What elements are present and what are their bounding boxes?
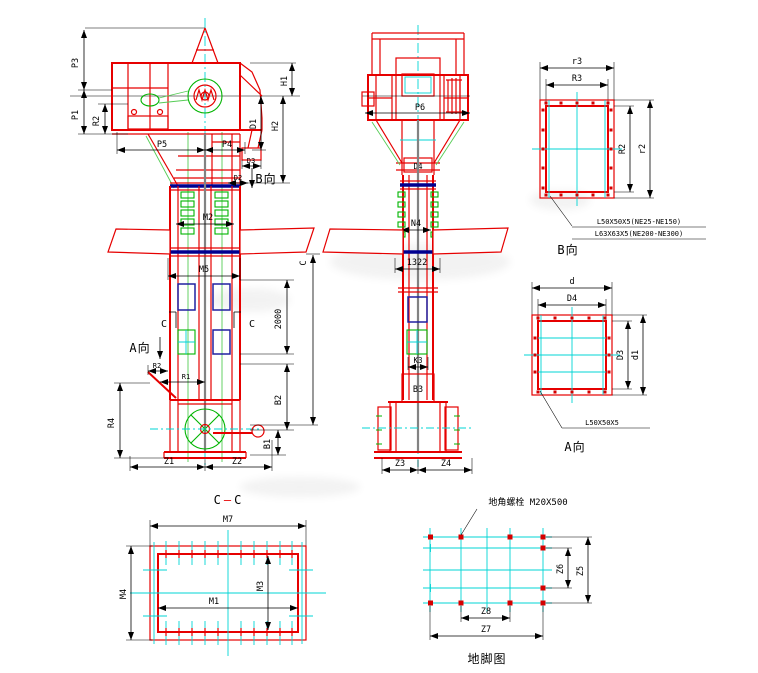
dim-d1-detail: d1 — [631, 350, 641, 360]
dim-r2-inner: R2 — [618, 144, 628, 154]
dim-d2: D2 — [234, 174, 242, 182]
dim-r2-outer: r2 — [638, 144, 648, 154]
dim-m3: M3 — [256, 581, 266, 591]
dim-z7: Z7 — [481, 625, 491, 635]
dim-z5: Z5 — [576, 566, 586, 576]
floor-slab-right — [433, 228, 508, 254]
dim-2000: 2000 — [274, 309, 284, 329]
dim-m5: M5 — [199, 265, 209, 275]
dim-z6: Z6 — [556, 564, 566, 574]
view-a-title: A向 — [564, 439, 585, 454]
dim-p4: P4 — [222, 140, 232, 150]
section-cut-c-left: C — [161, 319, 167, 330]
floor-slab-left — [323, 229, 403, 254]
cc-title-dash: — — [224, 493, 232, 507]
dim-z8: Z8 — [481, 607, 491, 617]
head-platform — [112, 63, 240, 130]
boot-section-front — [150, 400, 264, 458]
section-cut-c-right: C — [249, 319, 255, 330]
dim-z3: Z3 — [395, 459, 405, 469]
cad-drawing-sheet: P3 P1 R2 P5 P4 H1 D1 H2 D3 D2 B向 M2 — [0, 0, 758, 673]
section-cc-plan: C—C M7 M4 M3 M1 — [119, 493, 326, 656]
dim-b1: B1 — [263, 439, 273, 449]
foundation-plan: 地角螺栓 M20X500 Z6 Z5 Z8 Z7 地脚图 — [423, 496, 592, 666]
angle-steel-note-small: L50X50X5(NE25-NE150) — [597, 218, 681, 226]
angle-steel-note: L50X50X5 — [585, 419, 619, 427]
bucket-elevator-drawing: P3 P1 R2 P5 P4 H1 D1 H2 D3 D2 B向 M2 — [0, 0, 758, 673]
dim-d3: D3 — [247, 157, 255, 165]
drive-motor — [128, 91, 188, 129]
inspection-door — [178, 284, 195, 310]
dim-m1: M1 — [209, 597, 219, 607]
view-a-detail: d D4 D3 d1 L50X50X5 A向 — [524, 277, 650, 454]
foundation-title: 地脚图 — [467, 651, 506, 666]
dim-r1: R1 — [182, 373, 190, 381]
inspection-door — [213, 330, 230, 354]
floor-slab-left — [108, 229, 170, 254]
view-arrow-a: A向 — [129, 340, 150, 355]
dim-p3: P3 — [71, 58, 81, 68]
dim-1322: 1322 — [407, 258, 427, 268]
dim-z1: Z1 — [164, 457, 174, 467]
dim-r4: R4 — [107, 418, 117, 428]
view-b-detail: r3 R3 R2 r2 L50X50X5(NE25-NE150) L63X63X… — [532, 57, 706, 257]
anchor-bolt-note: 地角螺栓 M20X500 — [488, 496, 567, 508]
section-cc-title: C—C — [214, 493, 243, 507]
angle-steel-note-large: L63X63X5(NE200-NE300) — [595, 230, 684, 238]
dim-b3: B3 — [413, 385, 423, 395]
dim-r2-head: R2 — [92, 116, 102, 126]
dim-d3-detail: D3 — [616, 350, 626, 360]
dim-p6: P6 — [415, 103, 425, 113]
dim-n4: N4 — [411, 219, 421, 229]
front-elevation-view: P3 P1 R2 P5 P4 H1 D1 H2 D3 D2 B向 M2 — [70, 18, 320, 471]
dim-r2: R2 — [153, 362, 161, 370]
dim-r3-outer: r3 — [572, 57, 582, 67]
dim-c-length: C — [299, 260, 309, 265]
dim-m7: M7 — [223, 515, 233, 525]
dim-b2: B2 — [274, 395, 284, 405]
dim-z4: Z4 — [441, 459, 451, 469]
cc-title-c1: C — [214, 493, 222, 507]
dim-m2: M2 — [203, 213, 213, 223]
dim-h1: H1 — [280, 76, 290, 86]
dim-r3-inner: R3 — [572, 74, 582, 84]
dim-d1: D1 — [249, 119, 259, 129]
view-b-title: B向 — [557, 242, 578, 257]
dim-p5: P5 — [157, 140, 167, 150]
floor-slab-right — [240, 228, 314, 254]
dim-k3: K3 — [413, 356, 422, 365]
dim-d-outer: d — [569, 277, 574, 287]
dim-z2: Z2 — [232, 457, 242, 467]
foundation-grid — [423, 528, 552, 612]
dim-h2: H2 — [271, 121, 281, 131]
dim-p1: P1 — [71, 110, 81, 120]
cc-title-c2: C — [234, 493, 242, 507]
view-arrow-b: B向 — [255, 171, 276, 186]
dim-d4-inner: D4 — [567, 294, 577, 304]
dim-m4: M4 — [119, 589, 129, 599]
